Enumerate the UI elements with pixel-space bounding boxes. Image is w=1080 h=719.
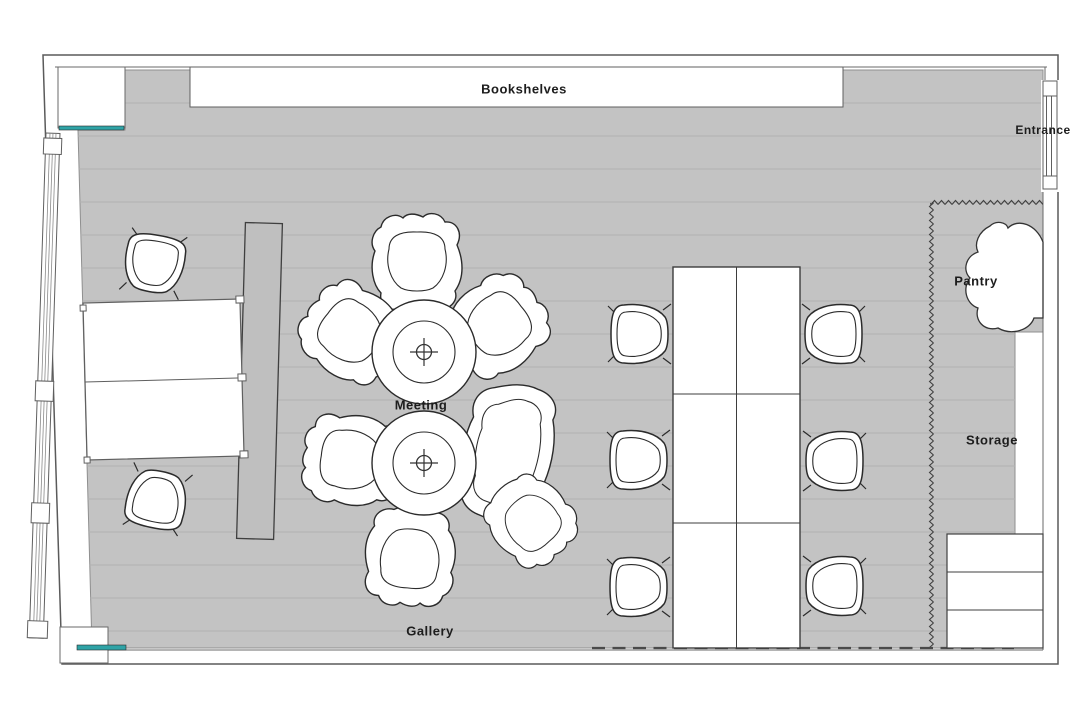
meeting-chair: [372, 214, 462, 314]
bookshelves-unit: [190, 67, 843, 107]
floor-plan-drawing: [0, 0, 1080, 719]
entrance-door: [1041, 80, 1059, 192]
window-mullion-block: [35, 381, 54, 402]
work-table-chair: [803, 431, 866, 491]
window-mullion-block: [31, 503, 50, 524]
work-table-chair: [803, 556, 866, 616]
work-table-chair: [607, 557, 670, 617]
work-table-chair: [608, 304, 671, 364]
work-table: [673, 267, 800, 648]
storage-shelf: [947, 534, 1043, 648]
desk-connector: [240, 451, 248, 458]
desk-connector: [80, 305, 86, 311]
window-mullion-block: [27, 621, 48, 639]
work-table-chair: [607, 430, 670, 490]
pantry-counter: [966, 222, 1043, 331]
work-table-chair: [802, 304, 865, 364]
zigzag-partition-side: [927, 202, 936, 648]
corner-cabinet: [58, 67, 125, 128]
meeting-table-1: [372, 300, 476, 404]
window-mullion-block: [43, 138, 62, 155]
desk-connector: [238, 374, 246, 381]
desk-connector: [84, 457, 90, 463]
zigzag-partition-top: [930, 197, 1043, 206]
teal-sill-top: [59, 126, 124, 130]
teal-sill-bottom: [77, 645, 126, 650]
desk-connector: [236, 296, 244, 303]
meeting-table-2: [372, 411, 476, 515]
floor-plan-page: Bookshelves Entrance Pantry Storage Meet…: [0, 0, 1080, 719]
meeting-chair: [361, 503, 459, 610]
window-desk: [80, 296, 248, 463]
